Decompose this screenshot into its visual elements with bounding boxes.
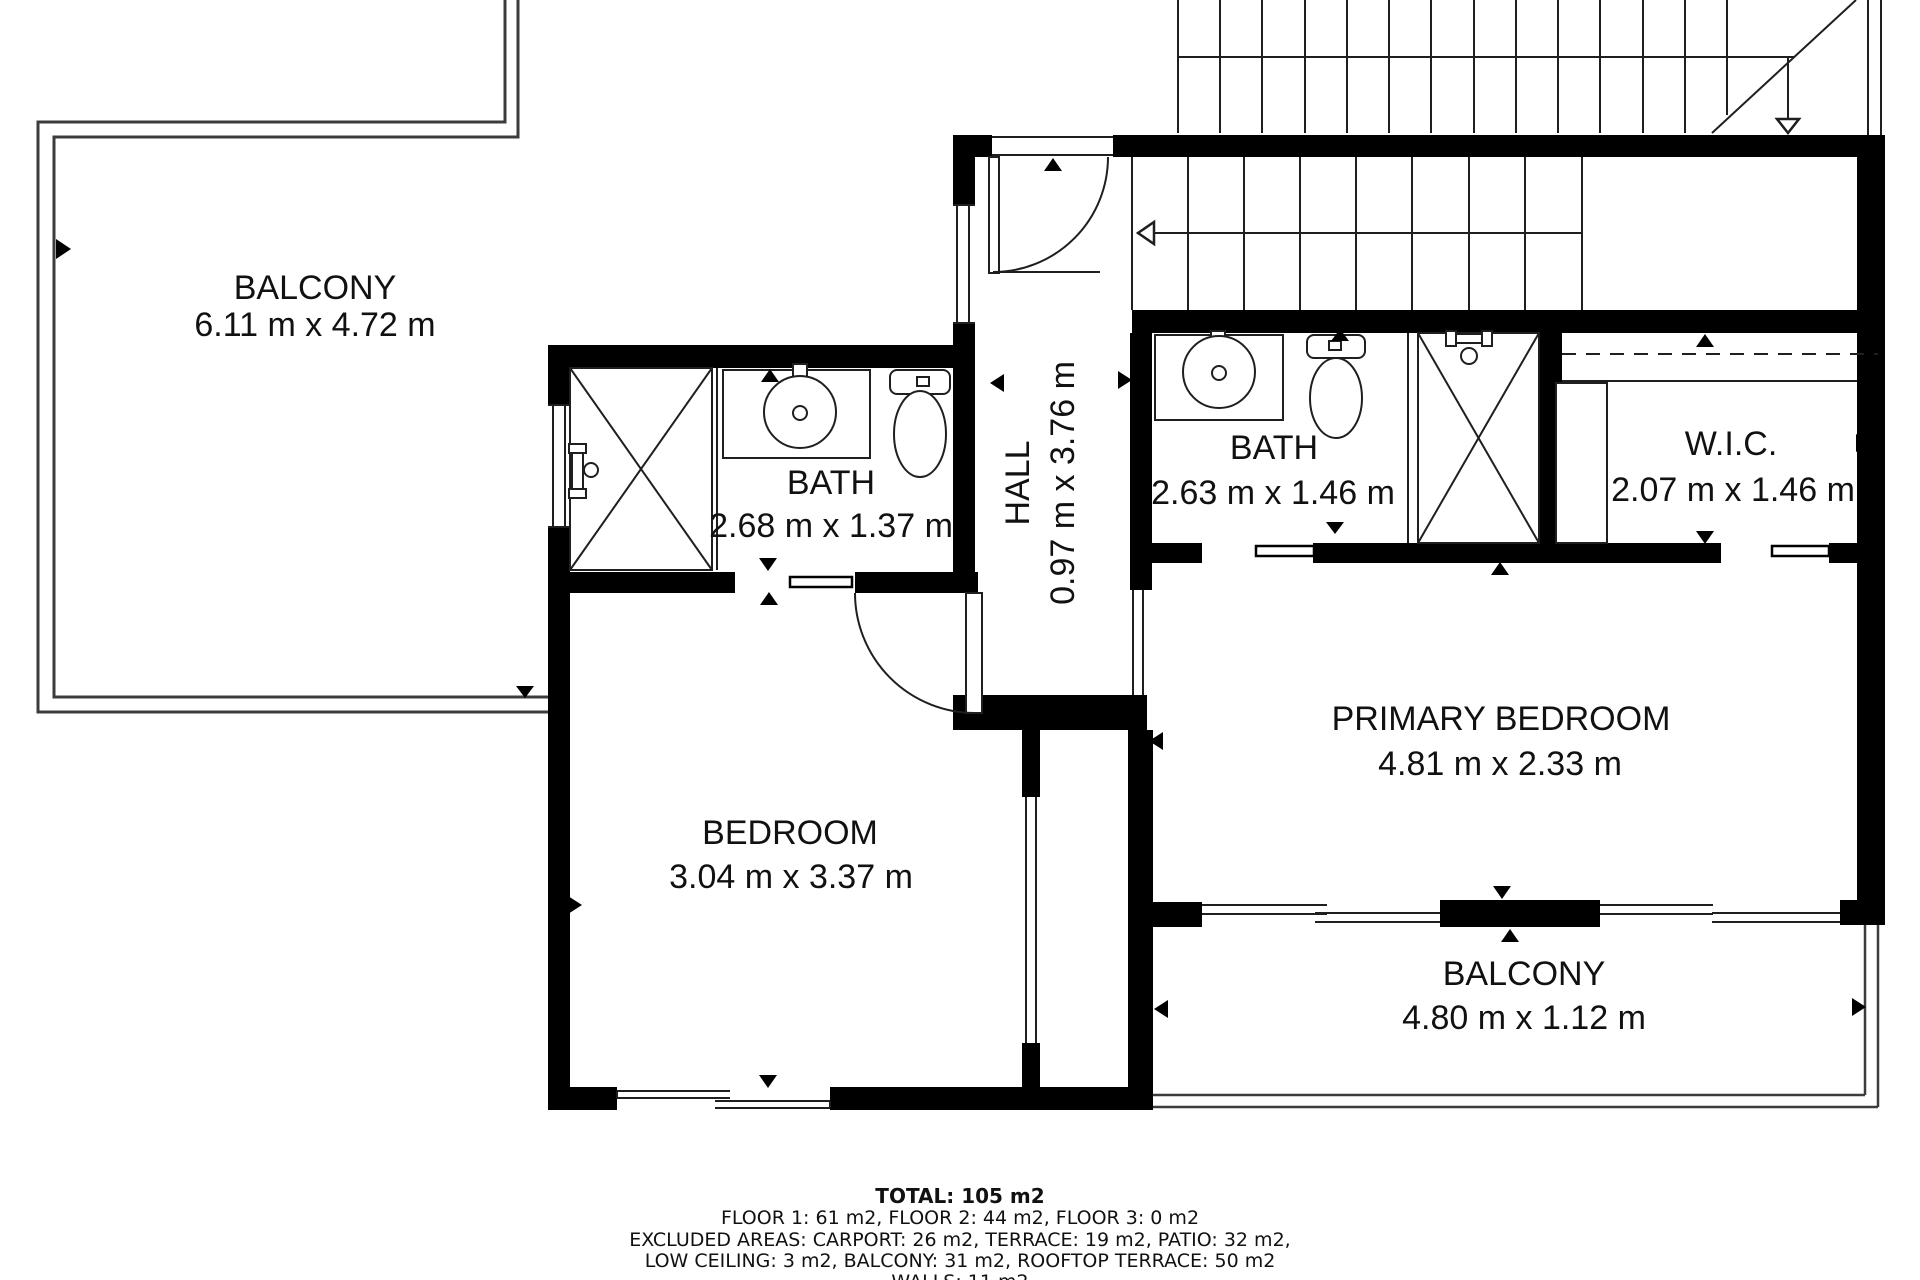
bedroom-east-window <box>1026 797 1036 1043</box>
walls <box>548 135 1885 1110</box>
summary-excluded-areas: EXCLUDED AREAS: CARPORT: 26 m2, TERRACE:… <box>629 1229 1290 1251</box>
summary-excluded-areas-2: LOW CEILING: 3 m2, BALCONY: 31 m2, ROOFT… <box>645 1250 1276 1272</box>
balcony-top-label: BALCONY <box>234 269 397 307</box>
bedroom-dimensions: 3.04 m x 3.37 m <box>669 858 913 896</box>
stairs-down-arrow-icon <box>1777 57 1799 133</box>
primary-bedroom-label: PRIMARY BEDROOM <box>1332 700 1671 738</box>
bath-left-dimensions: 2.68 m x 1.37 m <box>709 507 953 545</box>
shower-left-icon <box>569 368 717 570</box>
toilet-left-icon <box>890 370 950 477</box>
wic-dimensions: 2.07 m x 1.46 m <box>1611 471 1855 509</box>
summary-floors: FLOOR 1: 61 m2, FLOOR 2: 44 m2, FLOOR 3:… <box>721 1207 1199 1229</box>
bath-right-dimensions: 2.63 m x 1.46 m <box>1151 474 1395 512</box>
balcony-bottom-label: BALCONY <box>1443 955 1606 993</box>
stair-break-line <box>1712 0 1856 133</box>
wic-label: W.I.C. <box>1685 425 1778 463</box>
stairs-direction-arrow-icon <box>1138 222 1582 244</box>
balcony-top-outline <box>38 0 550 712</box>
bedroom-south-window <box>617 1091 830 1108</box>
hall-entry-door <box>989 137 1113 273</box>
sink-right-icon <box>1155 331 1283 420</box>
upper-staircase <box>1178 0 1881 135</box>
hall-label: HALL <box>999 440 1037 525</box>
bath-right-label: BATH <box>1230 429 1318 467</box>
bedroom-label: BEDROOM <box>702 814 878 852</box>
shower-west-window <box>548 405 570 527</box>
sink-left-icon <box>723 364 870 458</box>
primary-bedroom-pocket-door <box>1130 590 1152 695</box>
bath-left-sliding-door <box>790 577 852 587</box>
bath-left-label: BATH <box>787 464 875 502</box>
toilet-right-icon <box>1307 335 1365 438</box>
summary-walls: WALLS: 11 m2 <box>891 1271 1028 1280</box>
summary-total: TOTAL: 105 m2 <box>875 1184 1044 1208</box>
bath-right-sliding-door <box>1256 546 1314 556</box>
wic-sliding-door <box>1772 546 1829 556</box>
balcony-bottom-dimensions: 4.80 m x 1.12 m <box>1402 999 1646 1037</box>
hall-dimensions: 0.97 m x 3.76 m <box>1044 361 1082 605</box>
primary-bedroom-dimensions: 4.81 m x 2.33 m <box>1378 745 1622 783</box>
area-summary: TOTAL: 105 m2 FLOOR 1: 61 m2, FLOOR 2: 4… <box>629 1184 1290 1280</box>
lower-staircase <box>1132 157 1582 310</box>
shower-right-icon <box>1408 331 1539 543</box>
balcony-top-dimensions: 6.11 m x 4.72 m <box>194 306 435 344</box>
floorplan-page: BALCONY 6.11 m x 4.72 m BATH 2.68 m x 1.… <box>0 0 1920 1280</box>
floorplan-svg: BALCONY 6.11 m x 4.72 m BATH 2.68 m x 1.… <box>0 0 1920 1280</box>
hall-west-window <box>953 205 975 323</box>
